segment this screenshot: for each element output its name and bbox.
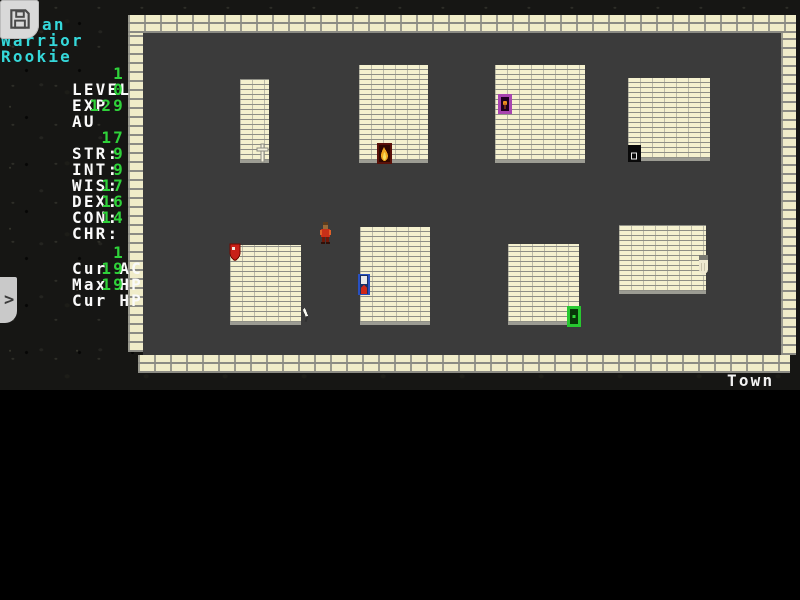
cur-hp-row: Cur HP 19 <box>1 277 125 293</box>
player-character-icon[interactable] <box>319 222 332 245</box>
save-button[interactable] <box>0 0 39 39</box>
gold-value: 129 <box>90 98 126 114</box>
blue-door-icon[interactable] <box>358 274 370 295</box>
location-label: Town <box>727 372 774 390</box>
wall-top <box>128 15 796 33</box>
game-screen: Town > an Warrior Rookie LEVEL 1 EXP 0 A… <box>0 0 800 390</box>
wall-right <box>781 33 796 355</box>
level-row: LEVEL 1 <box>1 66 125 82</box>
gold-row: AU 129 <box>1 98 125 114</box>
str-row: STR: 17 <box>1 130 125 146</box>
green-door-icon[interactable] <box>567 306 581 327</box>
character-title: Rookie <box>1 49 72 65</box>
building-3[interactable] <box>495 65 585 163</box>
floppy-disk-icon <box>7 6 33 32</box>
building-2[interactable] <box>359 65 428 163</box>
dagger-icon[interactable] <box>299 307 311 325</box>
chr-value: 14 <box>101 210 125 226</box>
character-panel: > an Warrior Rookie LEVEL 1 EXP 0 AU 129… <box>0 0 128 390</box>
town-map[interactable] <box>128 15 796 373</box>
wall-bottom <box>138 355 790 373</box>
temple-cross-icon[interactable] <box>255 143 270 163</box>
black-door-icon[interactable] <box>628 145 641 162</box>
white-glove-icon[interactable] <box>697 255 710 276</box>
building-8[interactable] <box>619 225 706 294</box>
building-6[interactable] <box>360 227 430 325</box>
red-shield-door-icon[interactable] <box>229 243 241 261</box>
chr-row: CHR: 14 <box>1 210 125 226</box>
purple-door-icon[interactable] <box>498 94 512 114</box>
cur-hp-value: 19 <box>101 277 125 293</box>
flame-door-icon[interactable] <box>377 143 392 164</box>
int-row: INT: 9 <box>1 146 125 162</box>
